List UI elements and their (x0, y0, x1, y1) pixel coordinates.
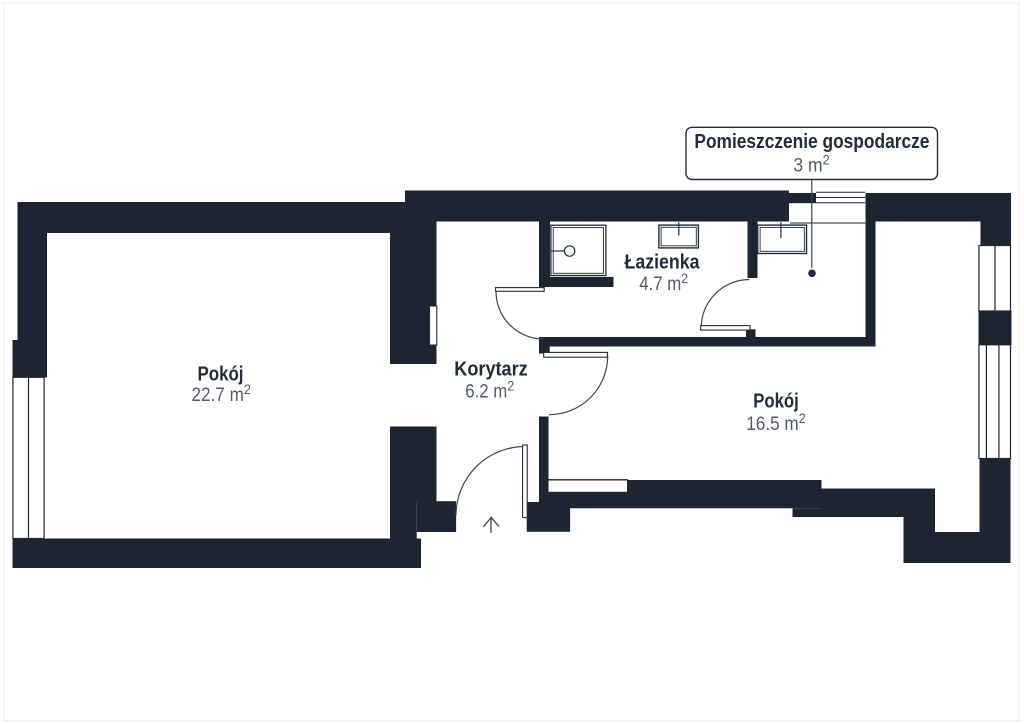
svg-text:Pokój: Pokój (198, 364, 244, 386)
svg-text:22.7 m2: 22.7 m2 (191, 381, 251, 406)
svg-text:16.5 m2: 16.5 m2 (746, 410, 806, 435)
svg-text:Pomieszczenie gospodarcze: Pomieszczenie gospodarcze (694, 131, 929, 153)
svg-text:4.7 m2: 4.7 m2 (639, 270, 688, 295)
svg-text:Pokój: Pokój (753, 390, 799, 412)
svg-text:6.2 m2: 6.2 m2 (465, 377, 514, 402)
svg-text:Łazienka: Łazienka (625, 251, 701, 273)
svg-text:Korytarz: Korytarz (454, 359, 528, 381)
